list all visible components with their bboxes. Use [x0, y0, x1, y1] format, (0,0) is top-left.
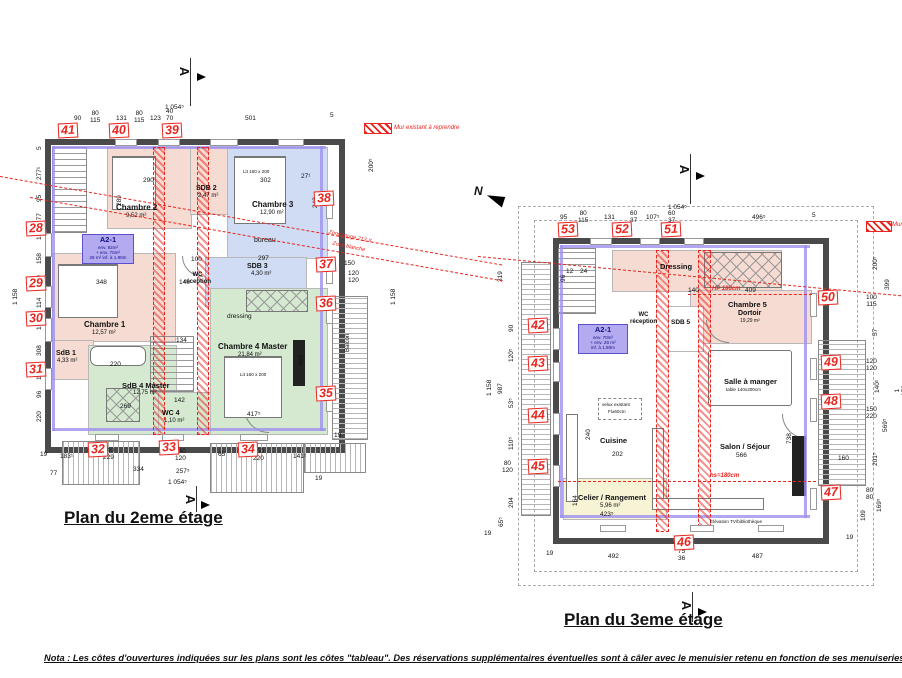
dim-label: 160 — [838, 455, 849, 462]
room-area: 2,47 m² — [198, 193, 218, 200]
window-opening — [640, 238, 660, 245]
dim-label: 257⁵ — [176, 468, 190, 475]
dim-label: 164 — [572, 495, 579, 506]
dim-label: 134 — [176, 337, 187, 344]
bed-size-label: Lit 160 x 200 — [243, 169, 269, 174]
room-label: WC 4 — [162, 409, 180, 418]
nota-text: Nota : Les côtes d'ouvertures indiquées … — [44, 653, 902, 663]
dim-label: 308 — [36, 345, 43, 356]
section-letter: A — [679, 601, 694, 610]
room-area: 12,75 m² — [133, 390, 157, 397]
plan2-apartment-outline-left — [52, 146, 55, 431]
dim-label: 57 — [872, 329, 879, 336]
dim-label: 200⁵ — [872, 256, 879, 270]
section-arrow — [696, 172, 705, 180]
dim-label: 80 115 — [578, 210, 588, 224]
marker-49: 49 — [821, 354, 842, 370]
room-label: Cuisine — [600, 436, 627, 445]
drawing-sheet: Balcon A2-1 env. 92m² + env. 70m² 26 m² … — [0, 0, 902, 678]
window-opening — [600, 525, 626, 532]
plan2-balcony-bottom-3 — [304, 443, 366, 473]
dim-label: 417⁵ — [247, 411, 261, 418]
plan3-apartment-outline-top — [560, 245, 810, 248]
window-opening — [810, 488, 817, 510]
room-area: 4,30 m² — [251, 271, 271, 278]
dim-label: 569⁵ — [882, 418, 889, 432]
dim-label: 95 — [560, 214, 567, 221]
marker-30: 30 — [26, 310, 47, 326]
window-opening — [95, 434, 119, 441]
velux-label: velux existant — [602, 402, 630, 407]
window-opening — [115, 139, 137, 146]
marker-47: 47 — [821, 484, 842, 500]
velux-sub-label: Fl±60cm — [608, 409, 626, 414]
bed-size-label: Lit 160 x 200 — [240, 372, 266, 377]
marker-33: 33 — [159, 439, 180, 455]
window-opening — [553, 328, 560, 350]
dim-label: 1 158 — [486, 380, 493, 396]
room-label: Dressing — [660, 262, 692, 271]
plan3-existing-wall-strip-2 — [698, 250, 711, 532]
room-sdb-2 — [190, 147, 229, 215]
dim-label: 348 — [96, 279, 107, 286]
dim-label: 65 — [218, 451, 225, 458]
dim-label: 158 — [36, 253, 43, 264]
window-opening — [758, 525, 784, 532]
apartment-code: A2-1 — [86, 236, 130, 245]
section-letter: A — [183, 495, 198, 504]
dim-label: 131 — [604, 214, 615, 221]
dim-label: 140 — [688, 287, 699, 294]
room-area: 12,90 m² — [260, 210, 284, 217]
dim-label: 140 — [179, 279, 190, 286]
north-label: N — [474, 184, 483, 198]
dim-label: 1 158 — [894, 385, 902, 396]
room-sub-label: Dortoir — [738, 309, 761, 318]
apartment-tag-a2-1: A2-1 env. 70m² + env. 26 m² inf. à 1.80m — [578, 324, 628, 354]
room-label: SDB 2 — [196, 184, 217, 193]
window-opening — [210, 139, 238, 146]
marker-46: 46 — [674, 534, 695, 550]
dim-label: 120⁵ — [508, 348, 515, 362]
room-sub-label: table 140x200cm — [726, 387, 761, 392]
room-area: 19,29 m² — [740, 318, 760, 325]
section-arrow — [197, 73, 206, 81]
plan3-apartment-outline-bottom — [560, 515, 810, 518]
marker-38: 38 — [314, 190, 335, 206]
marker-34: 34 — [238, 441, 259, 457]
dim-label: 496⁵ — [752, 214, 766, 221]
wardrobe — [246, 290, 308, 312]
dim-label: 114 — [36, 298, 43, 308]
room-label: Celier / Rangement — [578, 493, 646, 502]
dim-label: 1 158 — [390, 289, 397, 305]
dim-label: 1 158 — [12, 289, 19, 305]
window-opening — [240, 434, 268, 441]
room-label: SDB 5 — [671, 318, 690, 327]
dim-label: 487 — [752, 553, 763, 560]
room-area: 5,96 m² — [600, 503, 620, 510]
room-label: Salon / Séjour — [720, 442, 770, 451]
window-opening — [45, 233, 52, 257]
dim-label: 5 — [812, 212, 816, 219]
dim-label: 19 — [546, 550, 553, 557]
bed — [224, 356, 282, 418]
dim-label: 492 — [608, 553, 619, 560]
plan2-apartment-outline-bottom — [52, 428, 326, 431]
dim-label: 150 220 — [866, 406, 877, 420]
dim-label: 302 — [260, 177, 271, 184]
dim-label: 123 — [150, 115, 161, 122]
dim-label: 204 — [508, 497, 515, 508]
dim-label: 12 — [566, 268, 573, 275]
hatch-legend-swatch — [866, 221, 892, 232]
section-letter: A — [177, 67, 192, 76]
bed — [58, 264, 118, 318]
window-opening — [553, 465, 560, 487]
room-label: Chambre 4 Master — [218, 342, 287, 351]
dim-label: 423⁵ — [600, 511, 614, 518]
dim-label: 5 — [36, 146, 43, 150]
dim-label: 120 120 — [348, 270, 359, 284]
marker-45: 45 — [528, 458, 549, 474]
dim-label: 201⁵ — [872, 452, 879, 466]
dim-label: 80 80 — [866, 487, 873, 501]
room-label: Chambre 1 — [84, 320, 125, 329]
dim-label: 463 — [298, 355, 305, 366]
dim-label: 220 — [36, 411, 43, 422]
dim-label: 80 115 — [90, 110, 100, 124]
plan2-title: Plan du 2eme étage — [64, 508, 223, 528]
marker-52: 52 — [612, 221, 633, 237]
dim-label: 297 — [258, 255, 269, 262]
dim-label: 987 — [497, 383, 504, 394]
dim-label: 19 — [484, 530, 491, 537]
dim-label: 140¹ — [874, 380, 881, 393]
dim-label: 200⁵ — [368, 158, 375, 172]
section-line — [190, 58, 191, 106]
marker-37: 37 — [316, 256, 337, 272]
dim-label: 202 — [612, 451, 623, 458]
hs-height-line — [558, 481, 816, 482]
dim-label: 96 — [560, 275, 567, 282]
apartment-area-3: 26 m² inf. à 1.80m — [86, 255, 130, 260]
marker-44: 44 — [528, 407, 549, 423]
dim-label: 220 — [110, 361, 121, 368]
marker-31: 31 — [26, 361, 47, 377]
room-area: 1,10 m² — [164, 418, 184, 425]
existing-wall-note: Mur existant à reprendre — [892, 222, 902, 228]
window-opening — [690, 525, 714, 532]
room-area: 21,84 m² — [238, 352, 262, 359]
dim-label: 100 115 — [866, 294, 877, 308]
dim-label: 183¹ — [60, 453, 73, 460]
room-label: SdB 1 — [56, 349, 76, 358]
elevation-note: Elévation TV/bibliothèque — [710, 519, 762, 524]
marker-29: 29 — [26, 275, 47, 291]
window-opening — [158, 139, 180, 146]
north-arrow-icon — [485, 191, 506, 207]
marker-48: 48 — [821, 393, 842, 409]
dim-label: 277¹ — [36, 167, 43, 180]
section-line — [690, 154, 691, 204]
window-opening — [553, 413, 560, 435]
dim-label: 5 — [330, 112, 334, 119]
dim-label: 1 054⁵ — [168, 479, 187, 486]
window-opening — [810, 293, 817, 317]
dim-label: 290 — [143, 177, 154, 184]
marker-36: 36 — [316, 295, 337, 311]
marker-42: 42 — [528, 317, 549, 333]
marker-51: 51 — [661, 221, 682, 237]
dim-label: 40 70 — [166, 108, 173, 122]
dim-label: 65⁵ — [498, 517, 505, 527]
plan3-exterior-stair — [521, 262, 551, 516]
dim-label: 100 — [191, 256, 202, 263]
dim-label: 90 — [508, 325, 515, 332]
hs-height-label: hs=180cm — [710, 473, 739, 479]
dim-label: 142 — [174, 397, 185, 404]
dim-label: 409 — [745, 287, 756, 294]
dim-label: 90 — [74, 115, 81, 122]
balcony-label: Balcon — [345, 334, 352, 352]
kitchen-counter — [566, 414, 578, 502]
dim-label: 19 — [40, 451, 47, 458]
room-area: 4,33 m² — [57, 358, 77, 365]
dim-label: 501 — [245, 115, 256, 122]
dim-label: 110⁵ — [508, 437, 515, 450]
marker-43: 43 — [528, 355, 549, 371]
dim-label: 53⁵ — [508, 398, 515, 408]
room-label: Chambre 5 — [728, 300, 767, 309]
section-letter: A — [677, 165, 692, 174]
plan2-balcony-right — [332, 296, 368, 440]
apartment-tag-a2-1: A2-1 env. 92m² + env. 70m² 26 m² inf. à … — [82, 234, 134, 264]
room-label: Chambre 3 — [252, 200, 293, 209]
dim-label: 169⁵ — [876, 498, 883, 512]
dim-label: 141¹ — [293, 453, 306, 460]
dim-label: 27¹ — [301, 173, 310, 180]
room-area: 12,57 m² — [92, 330, 116, 337]
marker-50: 50 — [818, 289, 839, 305]
hp-height-label: HP 180cm — [712, 286, 740, 292]
dim-label: 566 — [736, 452, 747, 459]
apartment-code: A2-1 — [582, 326, 624, 335]
dim-label: 19 — [315, 475, 322, 482]
dim-label: 269 — [120, 403, 131, 410]
dim-label: 738 — [786, 433, 793, 444]
hp-height-line — [688, 294, 812, 295]
plan3-title: Plan du 3eme étage — [564, 610, 723, 630]
dim-label: 109 — [860, 510, 867, 521]
plan3-apartment-outline-left — [560, 245, 563, 518]
marker-35: 35 — [316, 385, 337, 401]
dim-label: 399 — [884, 279, 891, 290]
marker-41: 41 — [58, 122, 79, 138]
room-label: dressing — [227, 314, 252, 321]
window-opening — [553, 362, 560, 382]
apartment-area-3: inf. à 1.80m — [582, 345, 624, 350]
dim-label: 120 120 — [866, 358, 877, 372]
window-opening — [590, 238, 612, 245]
marker-28: 28 — [26, 220, 47, 236]
existing-wall-note: Mur existant à reprendre — [394, 125, 459, 131]
dim-label: 77 — [50, 470, 57, 477]
dim-label: 19 — [334, 432, 341, 439]
dim-label: 80 115 — [134, 110, 144, 124]
room-label: WC réception — [630, 312, 657, 325]
dim-label: 80 120 — [502, 460, 513, 474]
dim-label: 96 — [36, 391, 43, 398]
dim-label: 131 — [116, 115, 127, 122]
dim-label: 107⁵ — [646, 214, 660, 221]
marker-39: 39 — [162, 122, 183, 138]
dim-label: 240 — [585, 429, 592, 440]
hatch-legend-swatch — [364, 123, 392, 134]
marker-53: 53 — [558, 221, 579, 237]
window-opening — [810, 358, 817, 380]
dim-label: 334 — [133, 466, 144, 473]
window-opening — [684, 238, 704, 245]
marker-40: 40 — [109, 122, 130, 138]
window-opening — [810, 398, 817, 422]
room-label: SdB 4 Master — [122, 381, 170, 390]
plan3-existing-wall-strip-1 — [656, 250, 669, 532]
dim-label: 24 — [580, 268, 587, 275]
room-label: Salle à manger — [724, 377, 777, 386]
plan2-apartment-outline-top — [52, 146, 326, 149]
window-opening — [278, 139, 304, 146]
dim-label: 19 — [846, 534, 853, 541]
marker-32: 32 — [88, 441, 109, 457]
room-label: SDB 3 — [247, 262, 268, 271]
dim-label: 150 — [344, 260, 355, 267]
